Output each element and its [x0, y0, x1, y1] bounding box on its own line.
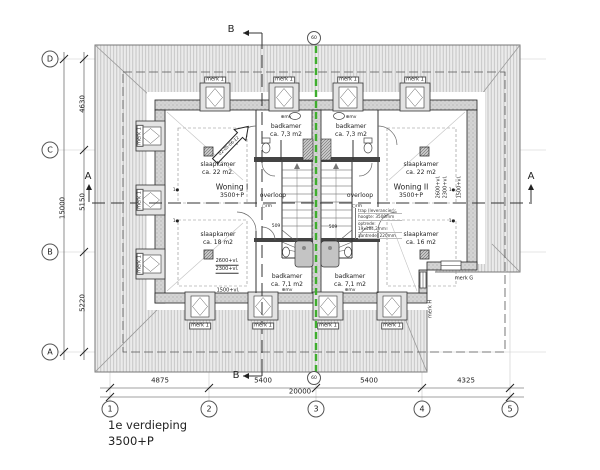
grid-row-c: C [42, 142, 59, 159]
dim-left-2: 5150 [80, 193, 87, 211]
stair-note: trap (leverancier): hoogte: 3500mm optre… [355, 208, 402, 239]
mark-dormer-top-2: merk 1 [273, 77, 295, 84]
mark-dormer-top-3: merk 1 [337, 77, 359, 84]
smoke-detector-label: rm [266, 204, 272, 209]
w2-height-2300: 2300+vl. [444, 176, 449, 199]
w1-stair-width: 509 [272, 225, 281, 230]
woning2-level: 3500+P [399, 193, 423, 199]
w2-landing: overloop [347, 193, 373, 199]
grid-col-1: 1 [102, 401, 119, 418]
dormer-bottom-1 [185, 292, 215, 320]
mark-dormer-left-3: merk 1 [137, 253, 144, 275]
mark-dormer-bottom-4: merk 1 [381, 323, 403, 330]
drawing-title-line1: 1e verdieping [108, 418, 187, 434]
dormer-top-3 [333, 83, 363, 111]
dim-bottom-4: 4325 [457, 378, 475, 385]
door-tag-4: 1● [449, 219, 455, 223]
section-b-label-top: B [228, 25, 235, 35]
woning1-name: Woning I [216, 183, 249, 191]
w2-height-1500: 1500+vl. [458, 176, 463, 199]
w1-height-1500: 1500+vl. [217, 289, 240, 294]
dim-left-1: 4630 [80, 95, 87, 113]
drawing-title: 1e verdieping 3500+P [108, 418, 187, 449]
mark-dormer-top-4: merk 1 [404, 77, 426, 84]
dormer-bottom-2 [248, 292, 278, 320]
mark-dormer-bottom-2: merk 1 [252, 323, 274, 330]
w2-bedroom-bottom-area: ca. 16 m2 [406, 240, 436, 246]
grid-row-d: D [42, 51, 59, 68]
dormer-bottom-3 [313, 292, 343, 320]
w1-bathroom-top: badkamer [271, 124, 301, 130]
w1-bedroom-top: slaapkamer [200, 162, 235, 168]
w2-bathroom-top-area: ca. 7,3 m2 [335, 132, 367, 138]
w2-bathroom-top: badkamer [336, 124, 366, 130]
grid-col-4: 4 [414, 401, 431, 418]
stair-note-line4: aantrede: 220mm [358, 233, 402, 239]
w2-bedroom-top: slaapkamer [403, 162, 438, 168]
w1-smoke-detector: ○rm [262, 205, 272, 210]
w1-bedroom-bottom: slaapkamer [200, 232, 235, 238]
detail-bubble-bottom: 60 [307, 371, 321, 385]
w2-height-2600: 2600+vl. [437, 176, 442, 199]
dim-left-3: 5220 [80, 294, 87, 312]
dormer-top-2 [269, 83, 299, 111]
dormer-top-4 [400, 83, 430, 111]
door-tag-2: 1● [173, 219, 179, 223]
w2-bathroom-bottom: badkamer [335, 274, 365, 280]
dim-bottom-2: 5400 [254, 378, 272, 385]
dormer-top-1 [200, 83, 230, 111]
mark-dormer-top-1: merk 1 [204, 77, 226, 84]
w2-stair-width: 509 [329, 226, 338, 231]
mark-dormer-left-2: merk 1 [137, 189, 144, 211]
stair-note-line3: optrede: 19x184,2mm [358, 221, 402, 233]
grid-col-2: 2 [201, 401, 218, 418]
w1-vent-bottom-icon: ⊕mv [282, 289, 293, 294]
w1-bedroom-top-area: ca. 22 m2. [202, 170, 234, 176]
section-a-label-right: A [528, 172, 535, 182]
section-a-label-left: A [85, 172, 92, 182]
w1-bathroom-top-area: ca. 7,3 m2 [270, 132, 302, 138]
window-merk-h [420, 272, 426, 288]
floor-plan-canvas: D C B A 1 2 3 4 5 60 60 B B A A 4875 540… [0, 0, 600, 470]
grid-col-3: 3 [308, 401, 325, 418]
w1-bathroom-bottom: badkamer [272, 274, 302, 280]
w2-vent-top-icon: ⊕mv [346, 116, 357, 121]
window-merk-g [441, 261, 461, 270]
mark-dormer-bottom-3: merk 1 [317, 323, 339, 330]
w1-bedroom-bottom-area: ca. 18 m2 [203, 240, 233, 246]
door-tag-1: 1● [173, 188, 179, 192]
w1-height-2300: 2300+vl. [216, 267, 239, 274]
mark-window-g: merk G [455, 277, 473, 282]
grid-row-b: B [42, 244, 59, 261]
detail-bubble-top: 60 [307, 31, 321, 45]
dim-left-total: 15000 [60, 197, 67, 219]
door-tag-3: 1● [449, 188, 455, 192]
woning1-level: 3500+P [220, 193, 244, 199]
dim-bottom-1: 4875 [151, 378, 169, 385]
woning2-name: Woning II [394, 183, 429, 191]
floor-plan-drawing [0, 0, 600, 470]
drawing-title-line2: 3500+P [108, 434, 187, 450]
w2-bedroom-top-area: ca. 22 m2 [406, 170, 436, 176]
grid-col-5: 5 [502, 401, 519, 418]
w2-bedroom-bottom: slaapkamer [403, 232, 438, 238]
mark-window-h: merk H [429, 300, 434, 318]
w1-vent-top-icon: ⊕mv [281, 116, 292, 121]
section-b-label-bottom: B [233, 371, 240, 381]
w1-height-2600: 2600+vl. [216, 259, 239, 266]
w2-vent-bottom-icon: ⊕mv [345, 289, 356, 294]
dim-bottom-total: 20000 [289, 389, 311, 396]
dim-bottom-3: 5400 [360, 378, 378, 385]
mark-dormer-left-1: merk 1 [137, 125, 144, 147]
dormer-bottom-4 [377, 292, 407, 320]
w1-landing: overloop [260, 193, 286, 199]
mark-dormer-bottom-1: merk 1 [189, 323, 211, 330]
grid-row-a: A [42, 344, 59, 361]
